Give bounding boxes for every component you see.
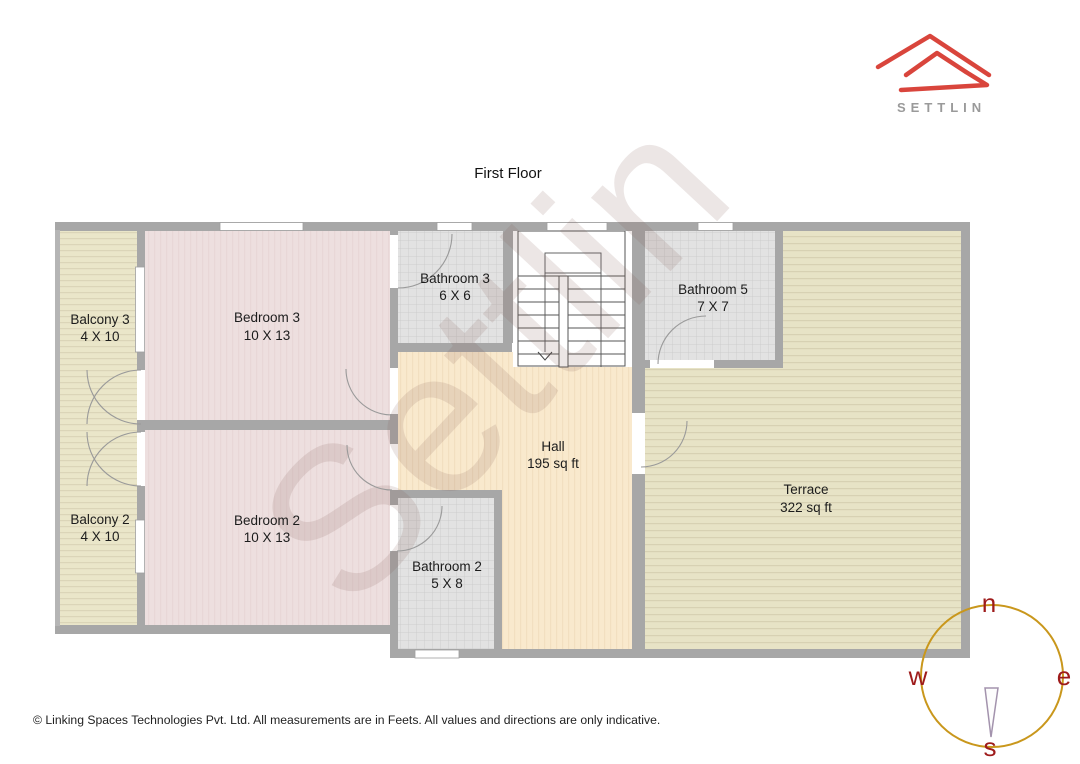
label-bathroom5-dims: 7 X 7 (697, 299, 729, 314)
label-bathroom5-name: Bathroom 5 (678, 282, 748, 297)
label-bathroom2-name: Bathroom 2 (412, 559, 482, 574)
wall-segment (775, 230, 783, 368)
door-jamb (650, 360, 658, 368)
label-balcony2-name: Balcony 2 (70, 512, 129, 527)
window (415, 650, 459, 658)
wall-segment (961, 222, 970, 658)
wall-segment (137, 230, 145, 267)
label-balcony3-dims: 4 X 10 (80, 329, 119, 344)
wall-segment (137, 573, 145, 625)
door-jamb (632, 467, 645, 474)
footer-disclaimer: © Linking Spaces Technologies Pvt. Ltd. … (33, 713, 660, 727)
door-jamb (632, 413, 645, 420)
compass-north: n (982, 588, 996, 618)
wall-segment (390, 230, 398, 235)
compass-west: w (908, 661, 928, 691)
room-terrace-left (645, 368, 783, 650)
window (136, 520, 145, 573)
wall-segment (137, 352, 145, 370)
wall-segment (137, 486, 145, 520)
wall-segment (632, 467, 645, 650)
window (136, 267, 145, 352)
room-balcony-strip (59, 230, 137, 625)
room-hall-lower (502, 490, 632, 650)
label-hall-dims: 195 sq ft (527, 456, 579, 471)
wall-segment (706, 360, 783, 368)
label-terrace-name: Terrace (783, 482, 828, 497)
wall-balcony-edge (55, 230, 60, 626)
page-title: First Floor (474, 165, 542, 182)
label-bathroom3-dims: 6 X 6 (439, 288, 471, 303)
label-bathroom2-dims: 5 X 8 (431, 576, 463, 591)
logo-brand-text: SETTLIN (897, 100, 986, 115)
compass-east: e (1057, 661, 1071, 691)
label-bathroom3-name: Bathroom 3 (420, 271, 490, 286)
label-bedroom3-name: Bedroom 3 (234, 310, 300, 325)
label-hall-name: Hall (541, 439, 564, 454)
compass-south: s (984, 732, 997, 762)
label-balcony2-dims: 4 X 10 (80, 529, 119, 544)
floor-plan-page: Settlin Balcony 3 4 X 10 Bedroom 3 10 X … (0, 0, 1080, 764)
label-terrace-dims: 322 sq ft (780, 500, 832, 515)
wall-segment (390, 649, 970, 658)
window (220, 223, 303, 231)
label-bedroom3-dims: 10 X 13 (244, 328, 291, 343)
door-jamb (706, 360, 714, 368)
label-balcony3-name: Balcony 3 (70, 312, 129, 327)
wall-segment (55, 625, 398, 634)
label-bedroom2-name: Bedroom 2 (234, 513, 300, 528)
label-bedroom2-dims: 10 X 13 (244, 530, 291, 545)
room-terrace-right (783, 230, 961, 650)
floor-plan-canvas: Settlin Balcony 3 4 X 10 Bedroom 3 10 X … (0, 0, 1080, 764)
